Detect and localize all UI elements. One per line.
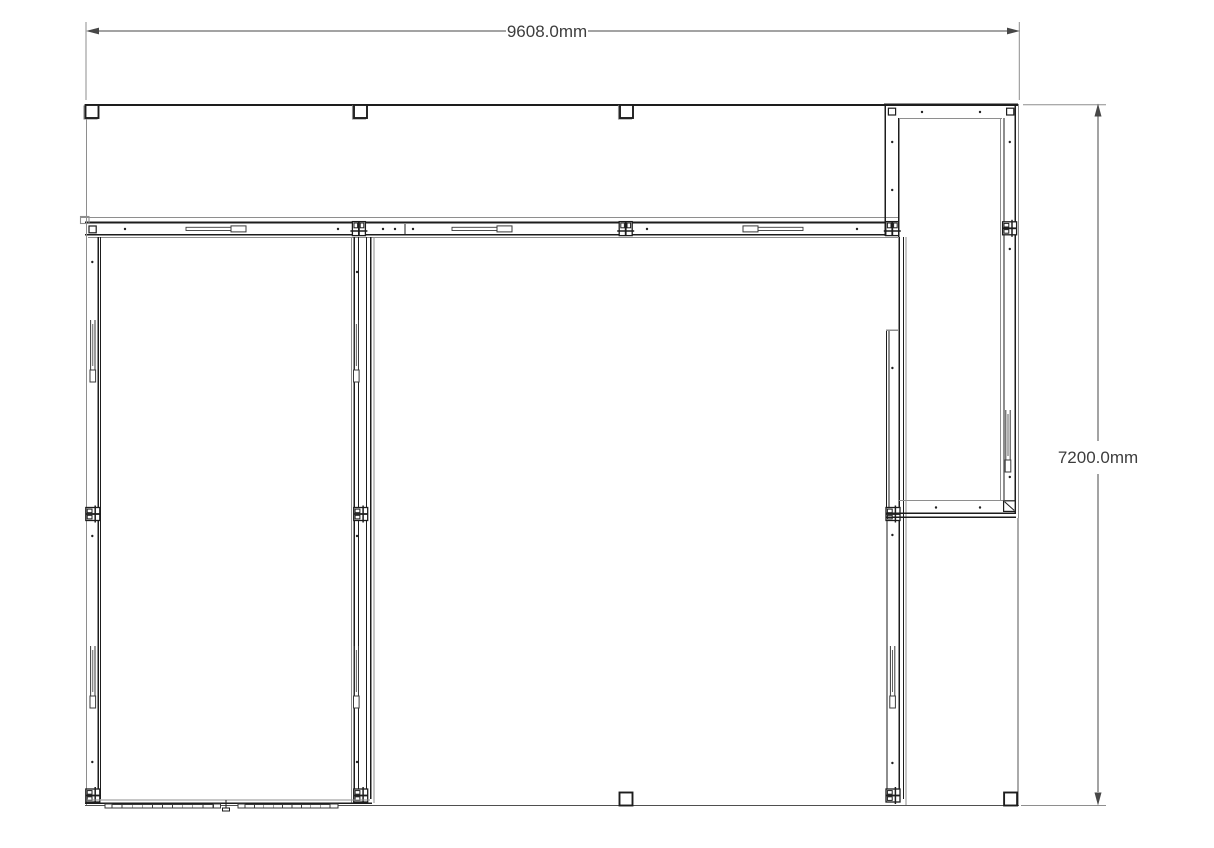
height-dimension-label: 7200.0mm — [1058, 448, 1138, 467]
wall-left — [86, 217, 101, 805]
wall-connector — [354, 506, 368, 523]
cad-drawing-viewport: 9608.0mm 7200.0mm — [0, 0, 1214, 848]
panel-slot — [354, 320, 360, 382]
wall-connector — [354, 787, 368, 804]
wall-post — [1007, 108, 1014, 115]
arrowhead-right-icon — [1007, 28, 1020, 35]
wall-post — [89, 226, 96, 233]
panel-slot — [186, 226, 246, 232]
wall-right — [886, 237, 906, 805]
dimension-horizontal: 9608.0mm — [86, 22, 1020, 100]
panel-slot — [354, 646, 360, 708]
wall-connector — [886, 506, 900, 523]
panel-slot — [90, 646, 96, 708]
bottom-post — [620, 793, 633, 806]
canopy-post — [86, 105, 99, 118]
canopy-post — [354, 105, 367, 118]
bottom-post — [1004, 793, 1017, 806]
bottom-edge — [85, 793, 1019, 811]
wall-connector — [350, 222, 367, 236]
canopy-post — [620, 105, 633, 118]
panel-slot — [1005, 410, 1011, 472]
fastener-dots — [891, 111, 1011, 509]
panel-slot — [90, 320, 96, 382]
canopy-posts — [84, 105, 633, 119]
canopy-edge — [85, 105, 886, 217]
wall-middle — [350, 222, 374, 804]
floor-plan-canvas: 9608.0mm 7200.0mm — [0, 0, 1214, 848]
wall-top — [80, 217, 901, 238]
wall-connector — [617, 222, 634, 236]
panel-slot — [452, 226, 512, 232]
wall-connector — [886, 787, 900, 804]
width-dimension-label: 9608.0mm — [507, 22, 587, 41]
dimension-vertical: 7200.0mm — [1021, 104, 1138, 806]
wall-connector — [86, 506, 100, 523]
arrowhead-down-icon — [1095, 793, 1102, 806]
wall-post — [888, 108, 895, 115]
arrowhead-left-icon — [86, 28, 99, 35]
wall-connector — [86, 787, 100, 804]
panel-slot — [890, 646, 896, 708]
panel-slot — [743, 226, 803, 232]
corner-bracket — [1004, 501, 1016, 512]
wall-connector — [1003, 220, 1017, 237]
arrowhead-up-icon — [1095, 104, 1102, 117]
